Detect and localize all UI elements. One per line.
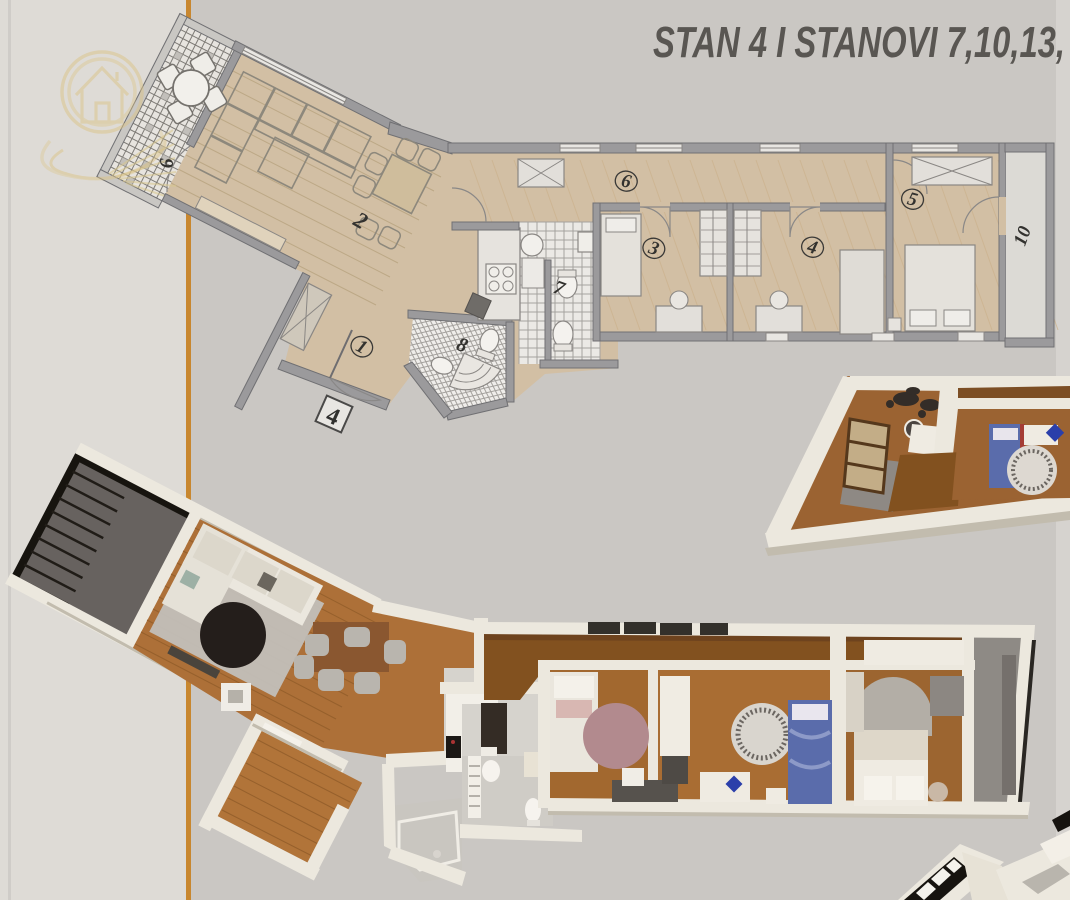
svg-text:STAN 4 I STANOVI 7,10,13,: STAN 4 I STANOVI 7,10,13, (653, 18, 1065, 67)
svg-text:9: 9 (155, 158, 177, 168)
